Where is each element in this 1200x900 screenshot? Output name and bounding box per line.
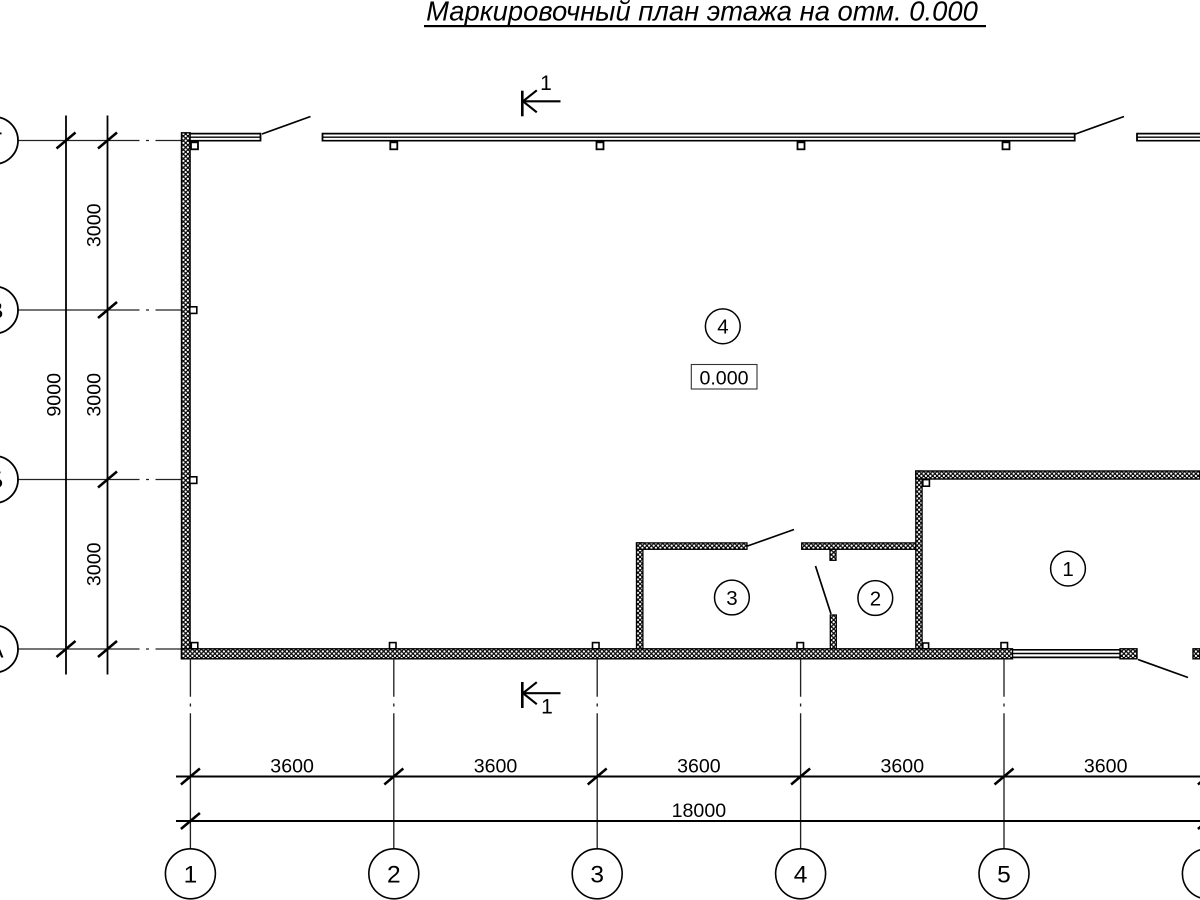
svg-text:1: 1	[1062, 558, 1073, 581]
svg-text:А: А	[0, 637, 4, 664]
svg-text:4: 4	[717, 316, 728, 339]
svg-text:2: 2	[387, 862, 401, 889]
svg-text:9000: 9000	[44, 373, 66, 417]
svg-text:5: 5	[997, 862, 1011, 889]
svg-text:3000: 3000	[84, 542, 106, 586]
svg-text:Маркировочный план этажа на от: Маркировочный план этажа на отм. 0.000	[426, 0, 978, 27]
svg-text:Г: Г	[0, 128, 2, 155]
svg-text:1: 1	[541, 696, 553, 719]
svg-text:3600: 3600	[677, 755, 721, 777]
svg-text:4: 4	[794, 862, 808, 889]
svg-text:3600: 3600	[474, 755, 518, 777]
svg-text:18000: 18000	[672, 800, 727, 822]
svg-text:3: 3	[590, 862, 604, 889]
svg-text:0.000: 0.000	[699, 367, 748, 389]
svg-text:3600: 3600	[1084, 755, 1128, 777]
svg-text:1: 1	[540, 72, 552, 95]
svg-text:3600: 3600	[270, 755, 314, 777]
svg-text:3000: 3000	[84, 373, 106, 417]
svg-text:3600: 3600	[881, 755, 925, 777]
svg-text:В: В	[0, 298, 4, 325]
svg-text:3: 3	[726, 587, 737, 610]
svg-text:3000: 3000	[84, 203, 106, 247]
svg-text:Б: Б	[0, 467, 3, 494]
svg-text:1: 1	[184, 862, 198, 889]
svg-text:2: 2	[870, 587, 881, 610]
